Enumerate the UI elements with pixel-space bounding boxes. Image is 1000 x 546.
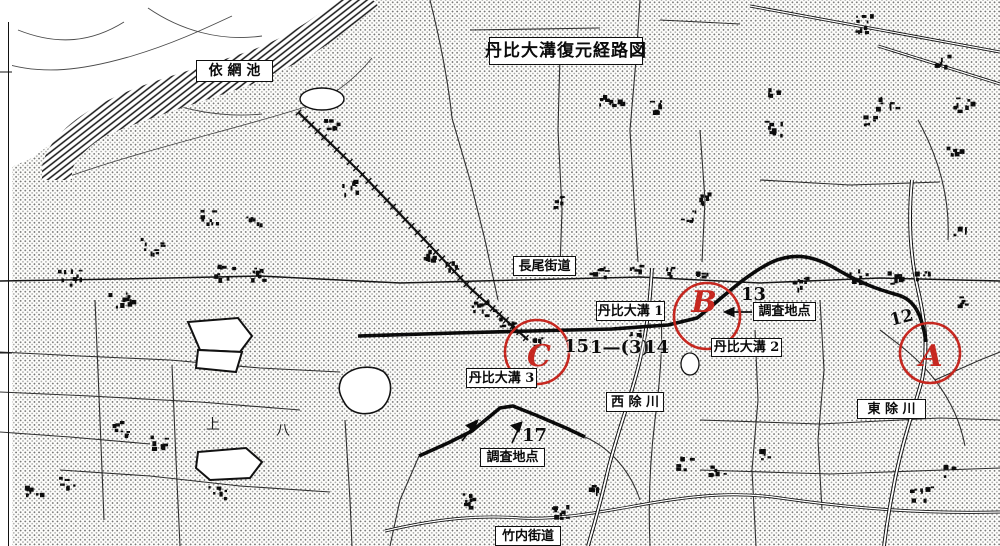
- label-takenouchi-kaido: 竹内街道: [495, 526, 561, 546]
- takenouchi-road: [385, 495, 1000, 531]
- marker-letter-b: B: [691, 288, 716, 318]
- base-char-hachi: 八: [276, 424, 290, 438]
- topright-roads: [750, 6, 1000, 84]
- point-number-1-3: 1—(3): [590, 339, 650, 357]
- label-nishiyoke-river: 西 除 川: [606, 392, 664, 412]
- point-number-14: 14: [644, 339, 669, 357]
- survey-circles: [505, 283, 960, 384]
- label-tajihi-omizo-1: 丹比大溝 1: [596, 301, 665, 321]
- marker-letter-c: C: [527, 342, 551, 372]
- marker-letter-a: A: [919, 342, 942, 372]
- base-char-kami: 上: [206, 418, 220, 432]
- label-tajihi-omizo-2: 丹比大溝 2: [711, 338, 782, 357]
- label-yosami-pond: 依 網 池: [196, 60, 273, 82]
- point-number-15: 15: [564, 338, 589, 356]
- point-number-17: 17: [522, 427, 547, 445]
- map-canvas: 丹比大溝復元経路図 依 網 池 長尾街道 丹比大溝 1 調査地点 丹比大溝 2 …: [0, 0, 1000, 546]
- map-margin: [0, 0, 12, 546]
- label-higashiyoke-river: 東 除 川: [857, 399, 926, 419]
- label-survey-point-south: 調査地点: [480, 448, 545, 467]
- label-survey-point-east: 調査地点: [753, 302, 816, 321]
- railway-line: [298, 112, 528, 340]
- map-title: 丹比大溝復元経路図: [489, 37, 643, 65]
- label-nagao-kaido: 長尾街道: [513, 256, 576, 276]
